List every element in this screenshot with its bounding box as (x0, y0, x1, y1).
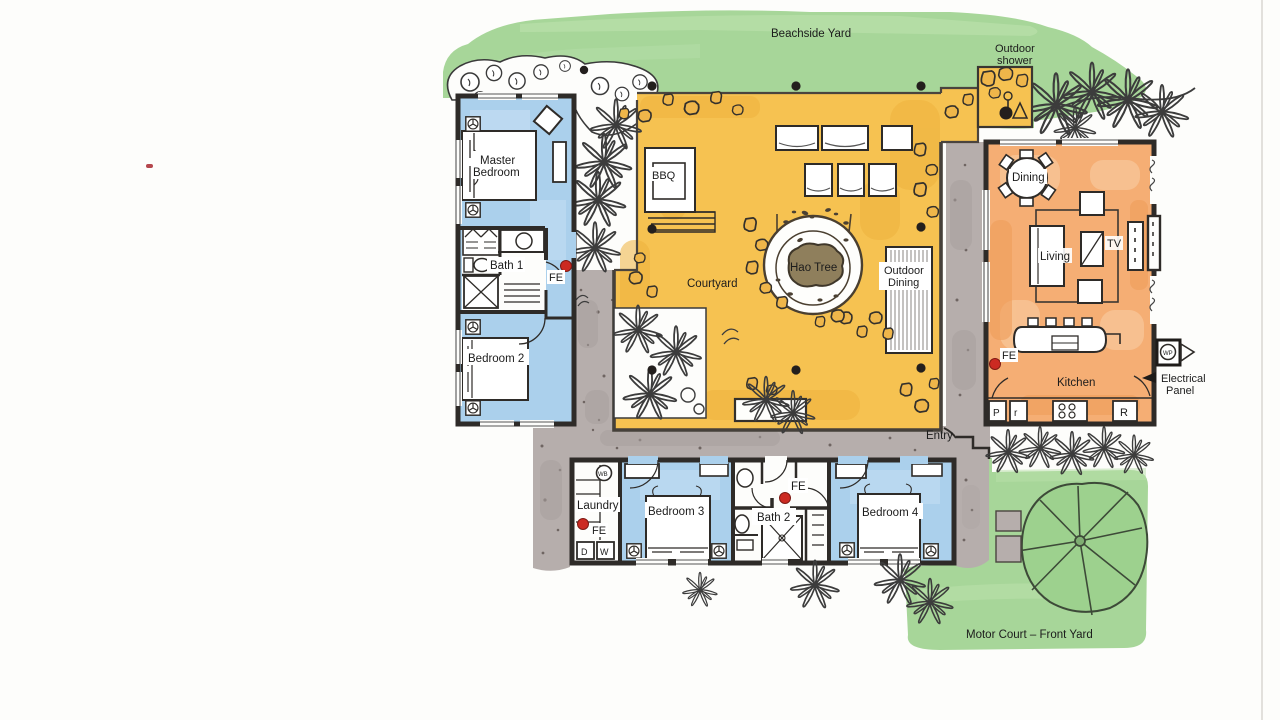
svg-text:Bath 2: Bath 2 (757, 512, 790, 524)
svg-text:Beachside Yard: Beachside Yard (771, 28, 851, 40)
svg-text:Bedroom 2: Bedroom 2 (468, 353, 524, 365)
svg-text:Outdoor: Outdoor (995, 43, 1035, 55)
svg-text:WB: WB (598, 472, 608, 478)
svg-text:D: D (581, 547, 588, 557)
svg-text:Courtyard: Courtyard (687, 278, 738, 290)
svg-text:Entry: Entry (926, 430, 953, 442)
svg-text:Master: Master (480, 155, 515, 167)
svg-text:Outdoor: Outdoor (884, 265, 924, 277)
svg-text:Bath 1: Bath 1 (490, 260, 523, 272)
svg-text:BBQ: BBQ (652, 170, 676, 182)
svg-text:W: W (600, 547, 609, 557)
svg-text:Bedroom 4: Bedroom 4 (862, 507, 919, 519)
svg-text:R: R (1120, 407, 1128, 419)
svg-text:FE: FE (549, 272, 563, 284)
svg-text:shower: shower (997, 55, 1033, 67)
svg-text:Living: Living (1040, 251, 1070, 263)
svg-text:Dining: Dining (888, 277, 919, 289)
svg-text:Hao Tree: Hao Tree (790, 262, 837, 274)
svg-text:WP: WP (1163, 351, 1173, 357)
svg-text:TV: TV (1107, 238, 1122, 250)
svg-text:Electrical: Electrical (1161, 373, 1206, 385)
svg-text:FE: FE (1002, 350, 1016, 362)
svg-text:Dining: Dining (1012, 172, 1045, 184)
svg-text:Laundry: Laundry (577, 500, 619, 512)
svg-text:Bedroom 3: Bedroom 3 (648, 506, 704, 518)
svg-text:Kitchen: Kitchen (1057, 377, 1095, 389)
svg-text:Panel: Panel (1166, 385, 1194, 397)
svg-text:Motor Court – Front Yard: Motor Court – Front Yard (966, 629, 1093, 641)
svg-text:FE: FE (592, 525, 606, 537)
svg-text:FE: FE (791, 481, 806, 493)
svg-text:P: P (993, 408, 1000, 419)
svg-text:Bedroom: Bedroom (473, 167, 520, 179)
